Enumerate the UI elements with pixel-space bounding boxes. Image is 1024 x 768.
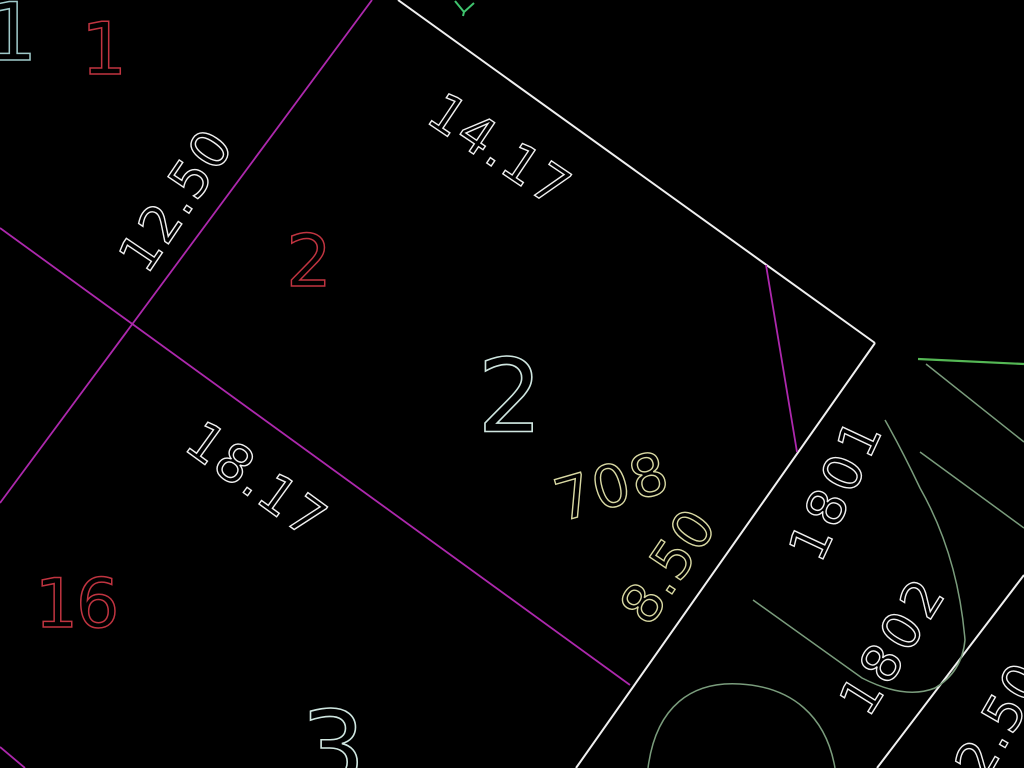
magenta-boundary-stub xyxy=(766,265,797,452)
lot-number-16-red: 16 xyxy=(35,565,118,644)
lot-numeral-1-cyan-partial: 1 xyxy=(0,0,37,79)
cad-viewport[interactable]: 12.50 14.17 18.17 2.50 708 8.50 1801 180… xyxy=(0,0,1024,768)
lot-numeral-3-cyan: 3 xyxy=(301,690,366,768)
lot-number-1-red: 1 xyxy=(81,7,127,91)
cad-canvas: 12.50 14.17 18.17 2.50 708 8.50 1801 180… xyxy=(0,0,1024,768)
survey-tick-icon xyxy=(455,1,474,16)
magenta-boundary-corner-fragment xyxy=(0,747,25,768)
dimension-12-50: 12.50 xyxy=(108,118,247,283)
dimension-8-50: 8.50 xyxy=(607,497,729,635)
parcel-id-1802: 1802 xyxy=(828,565,960,726)
green-letter-stroke-2 xyxy=(920,452,1024,528)
green-street-line xyxy=(918,359,1024,364)
green-letter-stroke-1 xyxy=(926,364,1024,442)
area-label-708: 708 xyxy=(547,438,678,536)
parcel-id-1801: 1801 xyxy=(778,407,897,570)
lot-number-2-red: 2 xyxy=(286,219,332,303)
green-letter-o-arc xyxy=(648,684,835,768)
parcel2-boundary-northeast xyxy=(398,0,875,343)
dimension-18-17: 18.17 xyxy=(174,410,338,552)
lot-numeral-2-cyan: 2 xyxy=(478,338,543,457)
dimension-14-17: 14.17 xyxy=(417,82,582,221)
dimension-2-50: 2.50 xyxy=(944,652,1024,768)
